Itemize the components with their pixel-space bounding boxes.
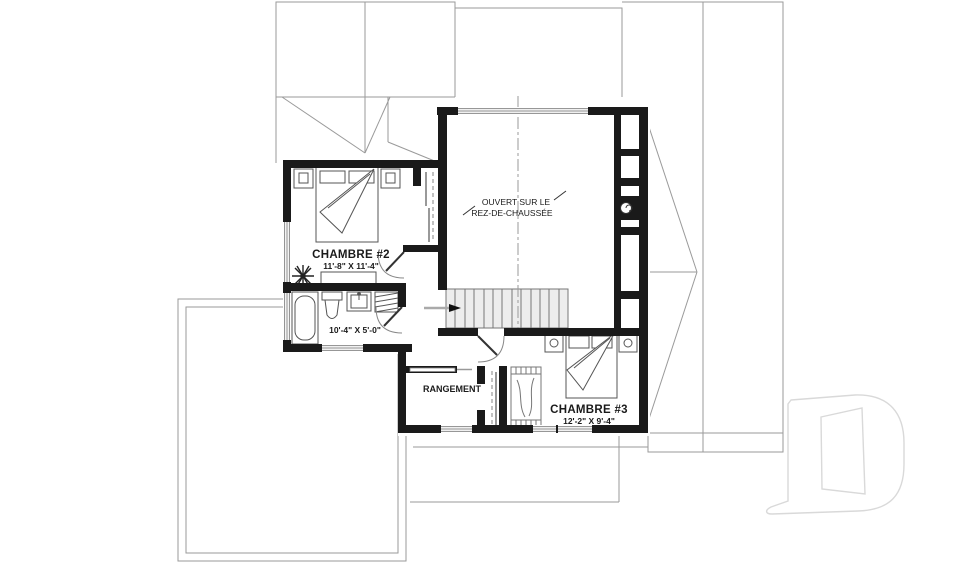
window — [458, 107, 588, 115]
window — [283, 293, 291, 340]
chimney-flue-icon — [621, 203, 633, 214]
dresser-icon — [321, 272, 376, 284]
bed-icon — [566, 332, 617, 398]
floor-plan-drawing: CHAMBRE #2 11'-8" X 11'-4" OUVERT SUR LE… — [0, 0, 960, 569]
staircase — [424, 289, 568, 328]
room-dims-bathroom: 10'-4" X 5'-0" — [329, 325, 381, 335]
floor-plan-page: { "plan": { "title": "Second floor plan … — [0, 0, 960, 569]
window — [283, 222, 291, 282]
window — [441, 425, 472, 433]
bathtub-icon — [292, 292, 318, 344]
room-label-chambre3: CHAMBRE #3 — [550, 404, 628, 416]
open-to-below-line1: OUVERT SUR LE — [482, 197, 551, 207]
bed-icon — [316, 167, 378, 242]
watermark-logo-d — [767, 395, 904, 514]
linen-shelves-icon — [375, 292, 398, 312]
room-label-chambre2: CHAMBRE #2 — [312, 249, 390, 261]
sink-icon — [347, 292, 371, 311]
window — [322, 344, 363, 352]
room-label-rangement: RANGEMENT — [423, 384, 482, 394]
window — [533, 425, 556, 433]
room-dims-chambre3: 12'-2" X 9'-4" — [563, 416, 615, 426]
room-dims-chambre2: 11'-8" X 11'-4" — [323, 261, 379, 271]
window — [558, 425, 592, 433]
open-to-below-line2: REZ-DE-CHAUSSÉE — [471, 208, 553, 218]
